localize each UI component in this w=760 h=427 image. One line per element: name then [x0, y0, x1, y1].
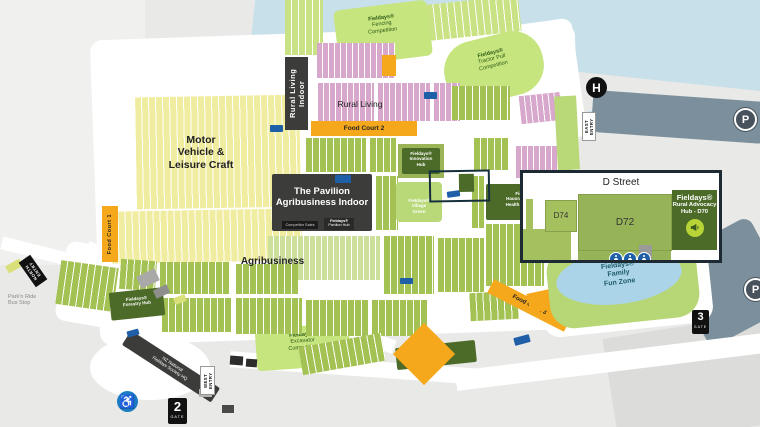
- building: [222, 405, 234, 413]
- highlight-box: [429, 169, 491, 202]
- stall-block: [370, 138, 396, 172]
- block-label: D74: [546, 211, 576, 220]
- food-court-label: Food Court 2: [311, 125, 417, 133]
- area-rural-advocacy-map: [459, 174, 474, 192]
- stall-block: [236, 298, 302, 334]
- inset-block-d74: D74: [545, 200, 577, 232]
- fieldays-logo: Fieldays®: [410, 151, 431, 156]
- gate-number: 3: [692, 310, 709, 325]
- inset-block-d72: D72: [578, 194, 672, 251]
- pavilion-tag-competitor-sales: Competitor Sales: [282, 221, 318, 229]
- area-label: Fencing Competition: [368, 20, 398, 35]
- fieldays-site-map: Fieldays®Fencing Competition Fieldays®Tr…: [0, 0, 760, 427]
- stall-block: [236, 264, 298, 294]
- area-label: Family Fun Zone: [604, 269, 636, 287]
- east-entry-sign: EAST ENTRY: [582, 112, 596, 141]
- gate-3: 3 GATE: [692, 310, 709, 334]
- stall-block: [438, 238, 484, 292]
- gate-number: 2: [168, 398, 187, 415]
- toilet-icon: [609, 252, 623, 263]
- west-entry-sign: WEST ENTRY: [200, 366, 215, 395]
- food-court-2: Food Court 2: [311, 121, 417, 136]
- label-parknride: Park'n Ride Bus Stop: [8, 294, 54, 307]
- inset-street-label: D Street: [523, 177, 719, 189]
- food-stand: [382, 55, 396, 76]
- advocacy-megaphone-icon: [686, 219, 704, 237]
- fieldays-logo: Fieldays®: [330, 219, 348, 223]
- area-label: Village Green: [412, 203, 426, 213]
- block-label: D72: [579, 217, 671, 229]
- parking-icon: P: [734, 108, 757, 131]
- building-label: The Pavilion Agribusiness Indoor: [272, 186, 372, 208]
- building-rural-living-indoor: Rural Living Indoor: [285, 57, 308, 130]
- label-agribusiness: Agribusiness: [220, 256, 325, 268]
- toilet-icon: [400, 278, 413, 284]
- stall-block: [306, 138, 366, 172]
- inset-detail: D Street D74 D72 Fieldays® Rural Advocac…: [520, 170, 722, 263]
- toilet-icon: [270, 125, 283, 132]
- stall-block: [384, 236, 434, 294]
- gate-word: GATE: [692, 325, 709, 329]
- food-court-1: Food Court 1: [102, 206, 118, 262]
- fieldays-logo: Fieldays®: [408, 198, 429, 203]
- stall-block: [474, 138, 508, 170]
- stall-block: [376, 176, 398, 230]
- inset-rural-advocacy-hub: Fieldays® Rural Advocacy Hub - D70: [672, 190, 717, 250]
- building-pavilion: The Pavilion Agribusiness Indoor Competi…: [272, 174, 372, 231]
- toilet-icon: [424, 92, 437, 99]
- green-strip-east: [554, 95, 580, 170]
- stall-block: [162, 298, 232, 332]
- building: [246, 359, 258, 368]
- accessibility-icon: ♿: [117, 391, 138, 412]
- label-rural-living: Rural Living: [330, 99, 390, 109]
- fieldays-logo: Fieldays®: [672, 193, 717, 202]
- helipad-icon: H: [586, 77, 607, 98]
- gate-2: 2 GATE: [168, 398, 187, 424]
- stall-block: [306, 300, 368, 336]
- toilet-icon: [623, 252, 637, 263]
- gate-word: GATE: [168, 415, 187, 419]
- food-court-label: Food Court 1: [107, 214, 113, 254]
- toilet-icon: [513, 334, 531, 346]
- toilet-icon: [637, 252, 651, 263]
- pavilion-tag-hub: Fieldays®Pavilion Hub: [324, 218, 354, 230]
- building-label: Rural Living Indoor: [288, 57, 306, 130]
- inset-green-area: [523, 229, 571, 260]
- hub-label: Rural Advocacy Hub - D70: [672, 202, 717, 216]
- area-label: Innovation Hub: [410, 156, 433, 166]
- label-motor-vehicle: Motor Vehicle & Leisure Craft: [136, 134, 266, 171]
- toilet-icon: [335, 175, 351, 183]
- building: [230, 356, 244, 366]
- stall-block: [452, 86, 510, 120]
- parking-icon: P: [744, 278, 760, 301]
